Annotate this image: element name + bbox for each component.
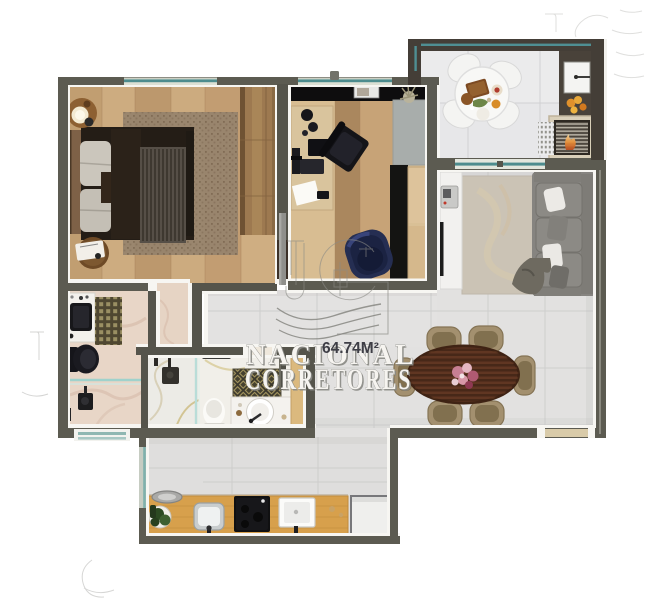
svg-text:64.74M²: 64.74M² — [322, 340, 379, 357]
svg-text:CORRETORES: CORRETORES — [245, 363, 412, 396]
